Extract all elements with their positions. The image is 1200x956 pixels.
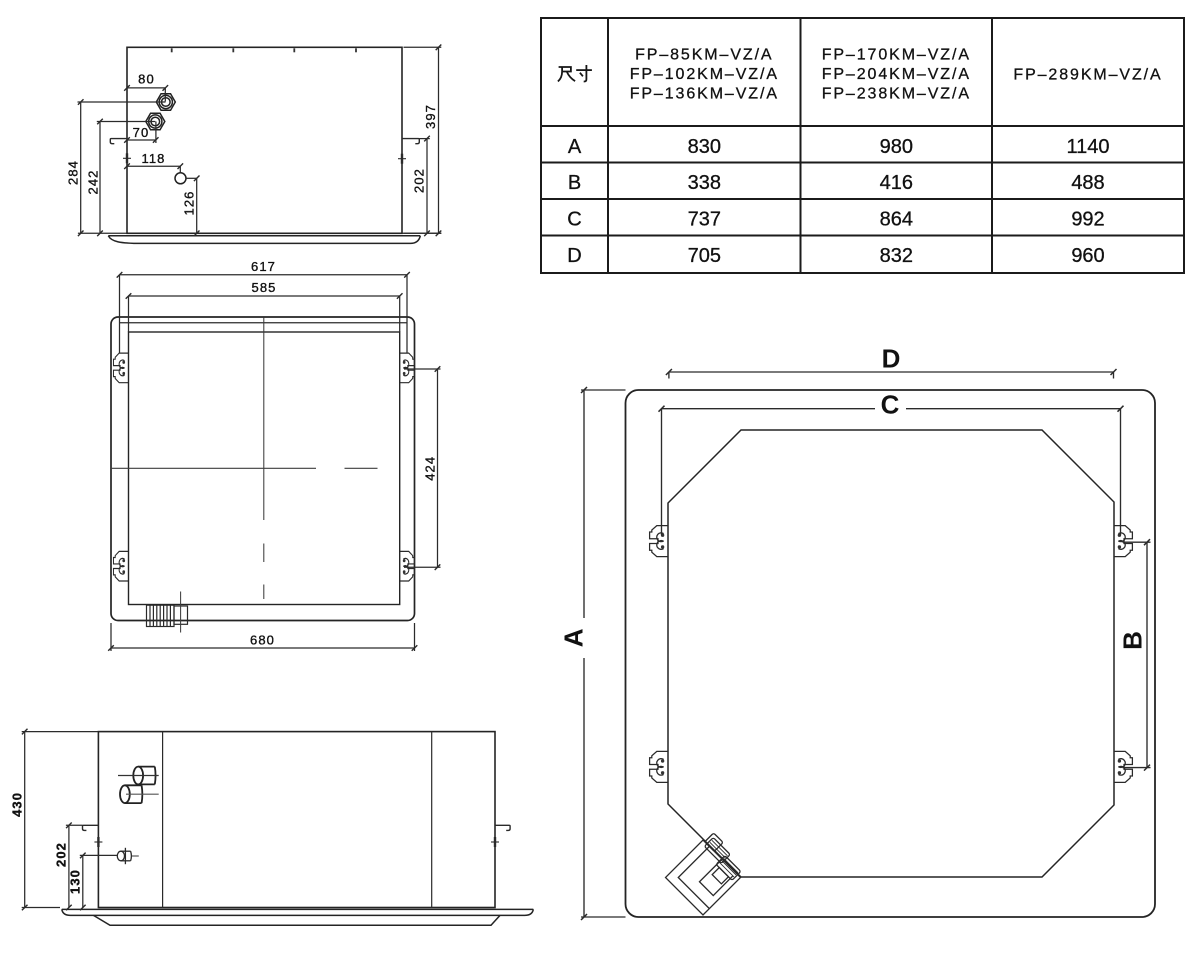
svg-text:B: B xyxy=(568,172,581,194)
svg-text:FP–289KM–VZ/A: FP–289KM–VZ/A xyxy=(1013,67,1162,84)
svg-text:FP–102KM–VZ/A: FP–102KM–VZ/A xyxy=(630,66,779,83)
svg-text:C: C xyxy=(881,390,900,420)
svg-text:B: B xyxy=(1118,631,1148,650)
svg-text:992: 992 xyxy=(1071,209,1104,231)
svg-text:830: 830 xyxy=(688,136,721,158)
svg-text:202: 202 xyxy=(53,842,68,867)
svg-text:D: D xyxy=(882,344,901,374)
svg-text:80: 80 xyxy=(138,72,155,87)
svg-text:284: 284 xyxy=(65,160,80,185)
svg-text:488: 488 xyxy=(1071,172,1104,194)
svg-text:832: 832 xyxy=(880,245,913,267)
svg-text:424: 424 xyxy=(422,456,437,481)
svg-text:70: 70 xyxy=(133,125,150,140)
svg-text:680: 680 xyxy=(250,632,275,647)
svg-text:FP–85KM–VZ/A: FP–85KM–VZ/A xyxy=(635,47,773,64)
svg-text:202: 202 xyxy=(411,168,426,193)
svg-text:430: 430 xyxy=(9,792,24,817)
svg-text:A: A xyxy=(559,628,589,647)
svg-text:126: 126 xyxy=(182,191,197,216)
svg-text:FP–204KM–VZ/A: FP–204KM–VZ/A xyxy=(822,66,971,83)
svg-text:130: 130 xyxy=(67,869,82,894)
svg-text:A: A xyxy=(568,136,582,158)
svg-text:397: 397 xyxy=(423,104,438,129)
svg-text:585: 585 xyxy=(252,280,277,295)
svg-text:FP–170KM–VZ/A: FP–170KM–VZ/A xyxy=(822,47,971,64)
svg-text:960: 960 xyxy=(1071,245,1104,267)
svg-text:C: C xyxy=(567,209,581,231)
svg-text:737: 737 xyxy=(688,209,721,231)
svg-text:FP–136KM–VZ/A: FP–136KM–VZ/A xyxy=(630,86,779,103)
svg-text:617: 617 xyxy=(251,259,276,274)
svg-text:338: 338 xyxy=(688,172,721,194)
svg-text:1140: 1140 xyxy=(1066,136,1109,158)
svg-text:D: D xyxy=(567,245,581,267)
svg-text:FP–238KM–VZ/A: FP–238KM–VZ/A xyxy=(822,86,971,103)
svg-text:980: 980 xyxy=(880,136,913,158)
svg-text:864: 864 xyxy=(880,209,913,231)
svg-text:118: 118 xyxy=(141,151,165,166)
svg-text:705: 705 xyxy=(688,245,721,267)
svg-text:416: 416 xyxy=(880,172,913,194)
svg-text:242: 242 xyxy=(85,170,100,195)
